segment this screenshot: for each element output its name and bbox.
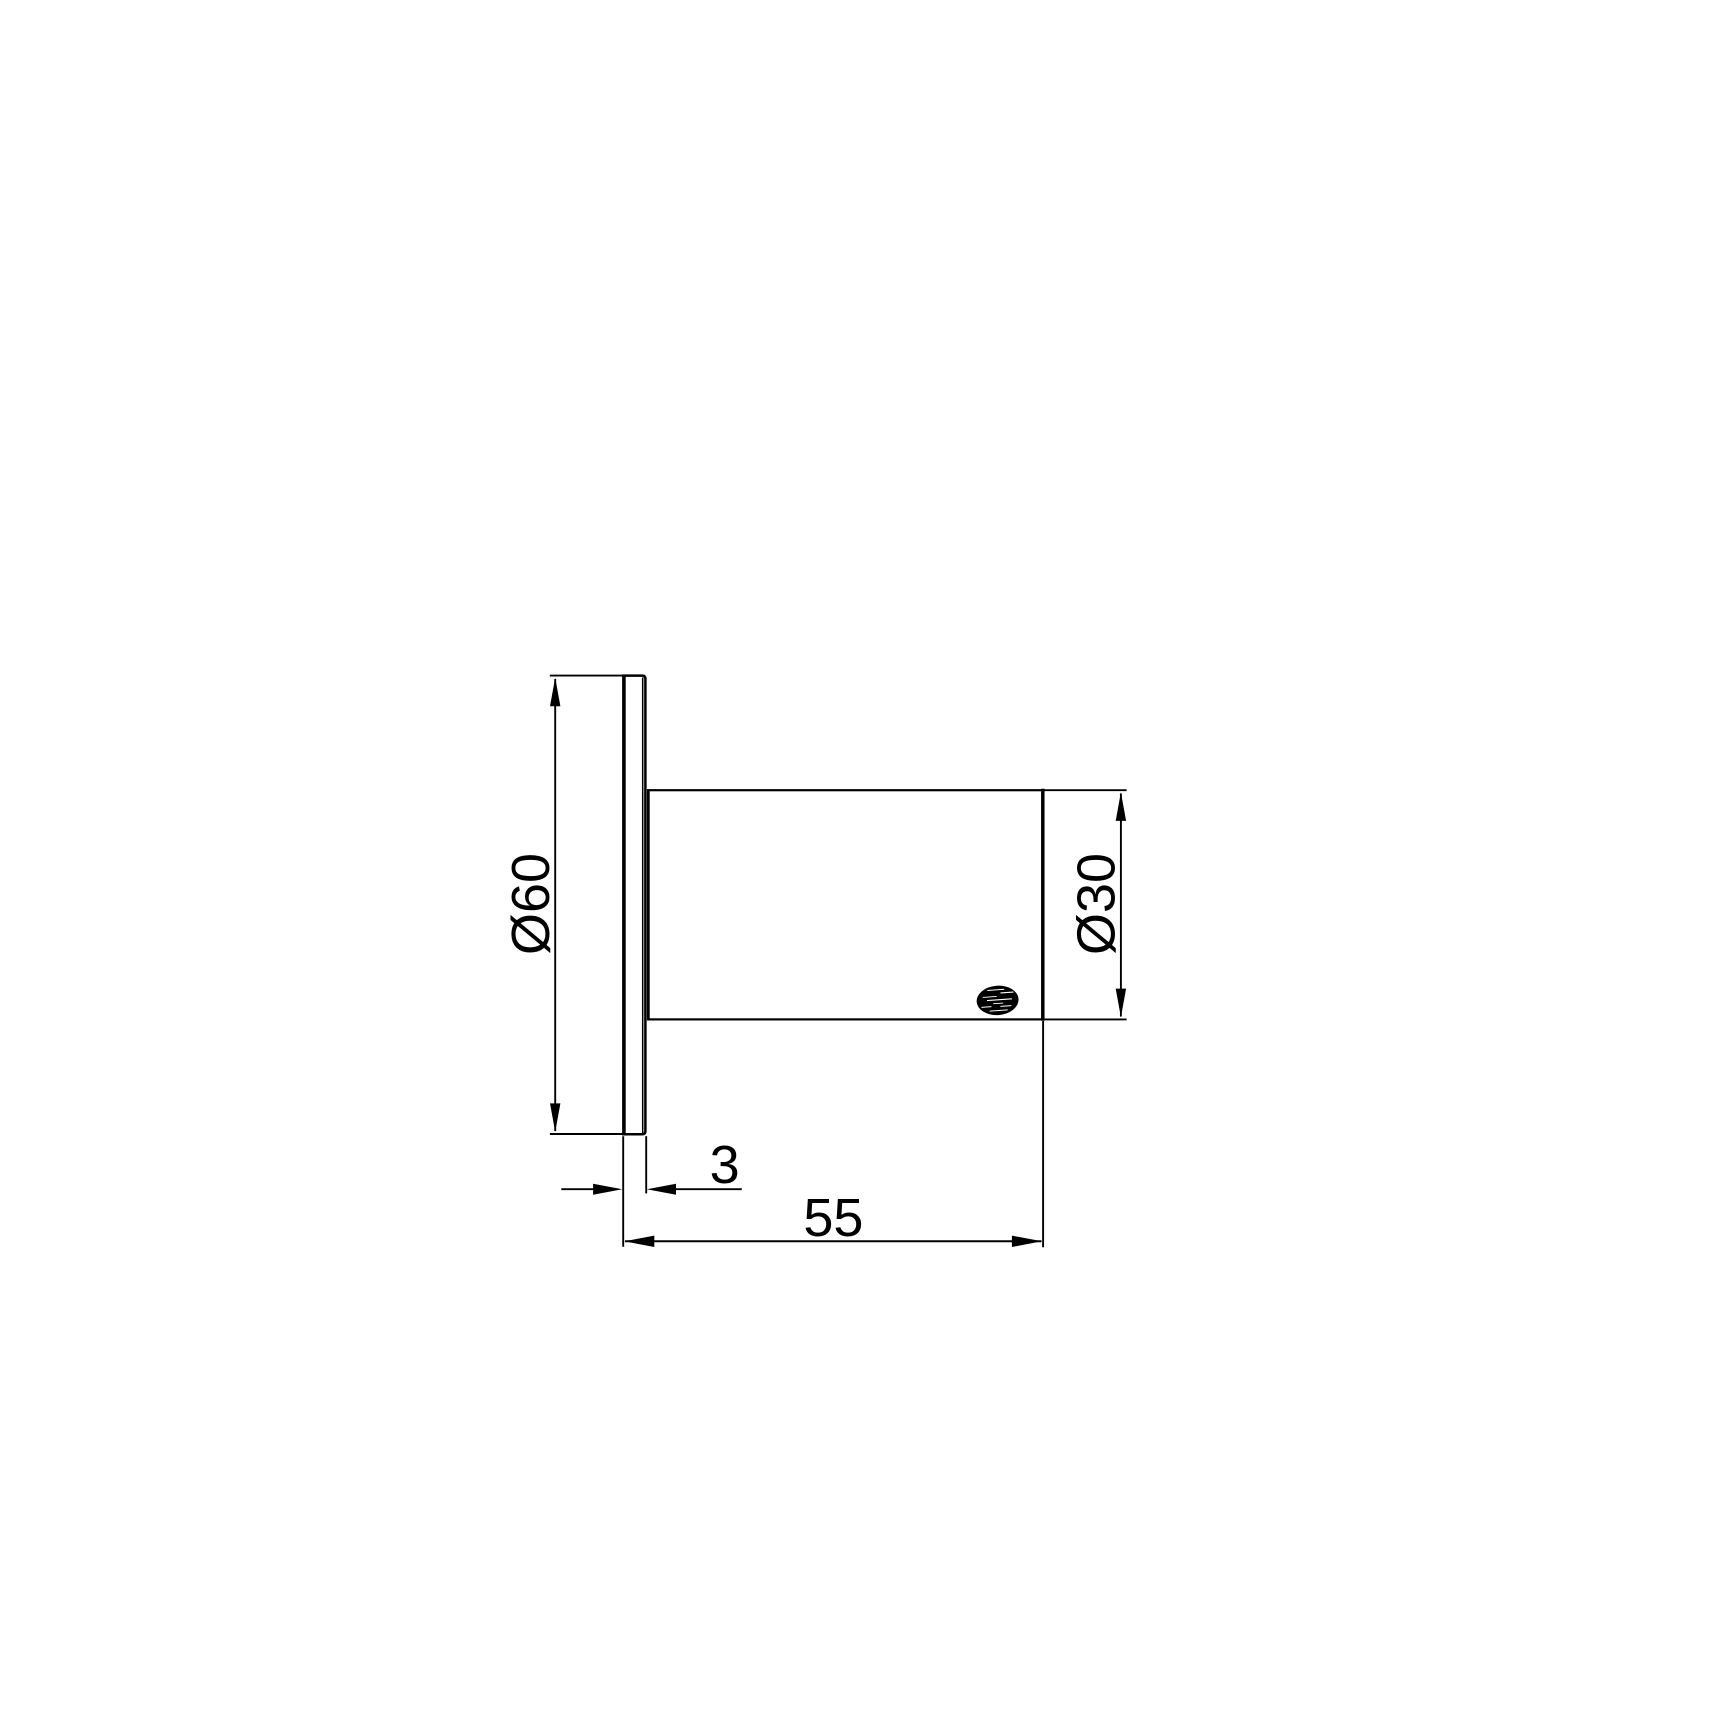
svg-text:55: 55 xyxy=(803,1188,863,1248)
svg-text:3: 3 xyxy=(710,1135,740,1195)
svg-text:Ø30: Ø30 xyxy=(1067,853,1127,955)
svg-text:Ø60: Ø60 xyxy=(501,853,561,955)
